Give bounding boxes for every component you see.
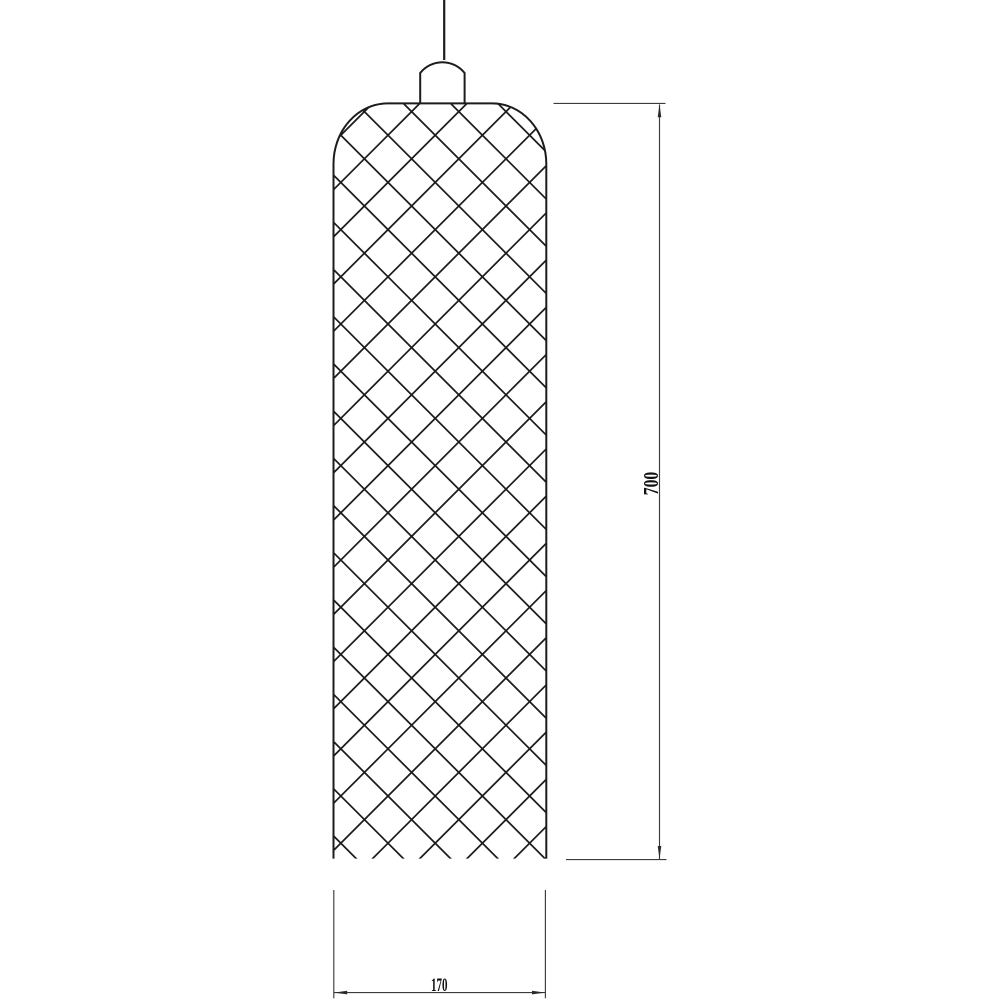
svg-text:700: 700	[639, 472, 663, 496]
svg-text:170: 170	[431, 975, 448, 996]
